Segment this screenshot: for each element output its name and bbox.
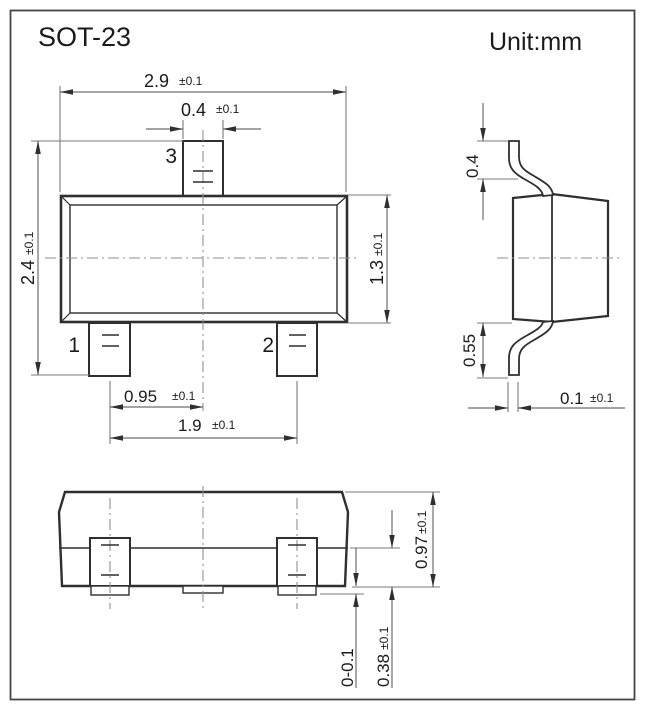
- dim-lead-thickness-value: 0.1: [560, 389, 584, 408]
- dim-pin-center-value: 0.95: [124, 387, 157, 406]
- dim-body-width-tol: ±0.1: [179, 74, 203, 88]
- page-title: SOT-23: [38, 22, 131, 52]
- dim-pin-center-tol: ±0.1: [172, 389, 196, 403]
- unit-label: Unit:mm: [489, 28, 582, 56]
- sot23-outline-drawing: SOT-23 Unit:mm 3 1 2 2.9 ±0.1: [0, 0, 645, 715]
- dim-pin-pitch-tol: ±0.1: [212, 418, 236, 432]
- dim-lead-width-top-tol: ±0.1: [216, 102, 240, 116]
- pin3-label: 3: [165, 145, 177, 168]
- dim-pkg-thickness-text: 0.97±0.1: [412, 510, 431, 569]
- dim-body-width-value: 2.9: [144, 71, 169, 91]
- dim-lead-rise-value: 0.4: [463, 154, 482, 178]
- dim-lead-thickness-tol: ±0.1: [590, 391, 614, 405]
- dim-pin-pitch-value: 1.9: [178, 416, 202, 435]
- top-view-pin1-outline: [89, 323, 130, 376]
- top-view-body-outline: [61, 196, 347, 322]
- pin2-label: 2: [262, 334, 274, 357]
- dim-lead-width-front-text: 0.38±0.1: [374, 626, 393, 687]
- pin1-label: 1: [68, 334, 80, 357]
- dim-lead-width-top-value: 0.4: [181, 100, 206, 120]
- drawing-sheet: SOT-23 Unit:mm 3 1 2 2.9 ±0.1: [0, 0, 645, 715]
- dim-standoff-value: 0-0.1: [338, 648, 357, 687]
- dim-lead-drop-value: 0.55: [460, 334, 479, 367]
- top-view-pin2-outline: [277, 323, 317, 376]
